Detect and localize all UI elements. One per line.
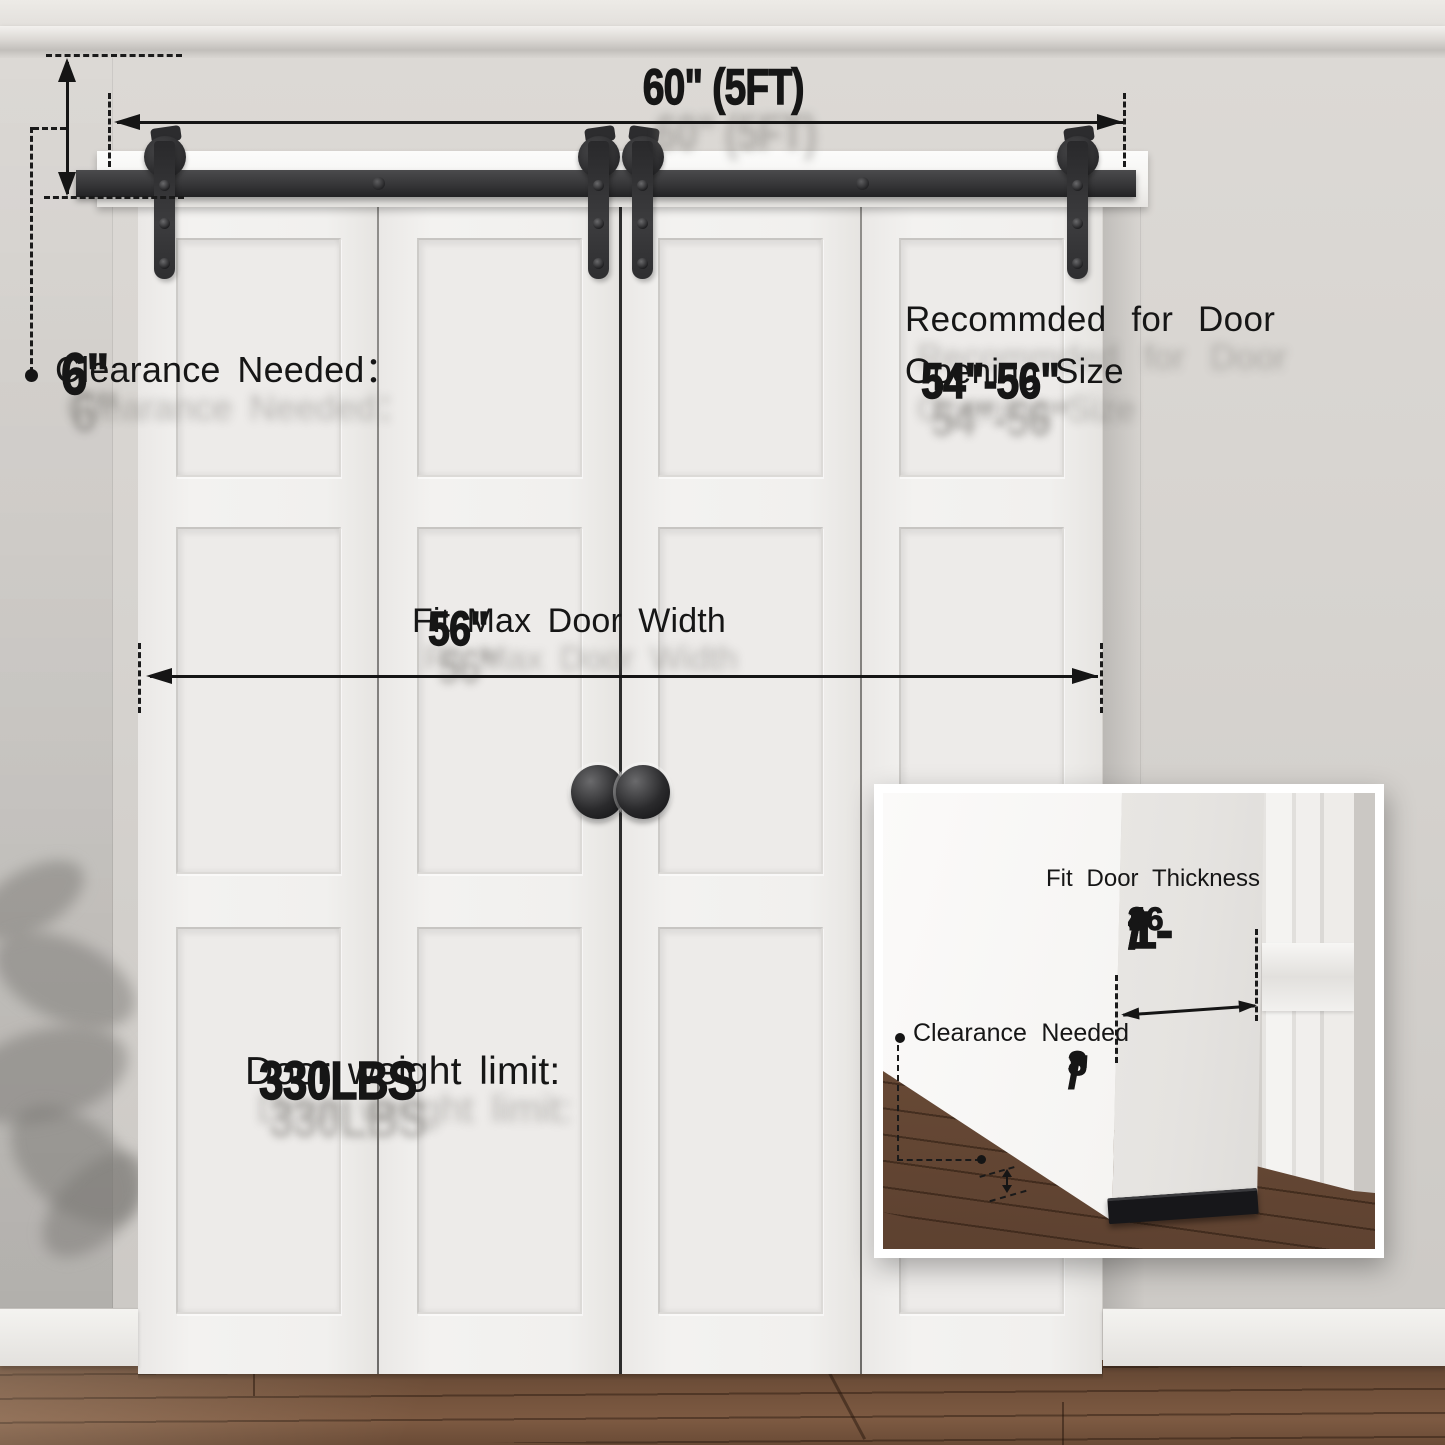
leader-line <box>33 127 66 130</box>
weight-value: 330LBS <box>259 1050 417 1112</box>
thickness-max-unit: " <box>1128 901 1152 961</box>
arrowhead-up-icon <box>58 58 76 82</box>
hanger-bolt <box>637 180 648 191</box>
door-panel <box>658 527 823 874</box>
product-dimension-diagram: 60" (5FT) Clearance Needed： 6" Recommded… <box>0 0 1445 1445</box>
hanger-bolt <box>159 258 170 269</box>
inset-jamb-molding <box>1262 943 1354 1011</box>
door-panel <box>658 927 823 1314</box>
leader-dot <box>977 1155 986 1164</box>
track-length-value: 60" (5FT) <box>643 58 804 116</box>
door-thickness-label: Fit Door Thickness <box>1023 865 1283 893</box>
clearance-bottom-line <box>44 196 184 199</box>
extension-line <box>1123 93 1126 167</box>
clearance-value: 6" <box>61 341 108 408</box>
hanger-bolt <box>1072 218 1083 229</box>
baseboard-right <box>1103 1308 1445 1366</box>
arrowhead-left-icon <box>146 668 172 684</box>
clearance-unit: " <box>1068 1045 1089 1099</box>
floor-plank-joint <box>1062 1402 1064 1445</box>
arrowhead-right-icon <box>1097 114 1123 130</box>
arrowhead-right-icon <box>1072 668 1098 684</box>
hanger-bolt <box>159 218 170 229</box>
hanger-bolt <box>637 218 648 229</box>
door-knob-right <box>616 765 670 819</box>
leader-line <box>30 127 33 373</box>
track-length-dimension-line <box>117 121 1123 124</box>
extension-line <box>108 93 111 167</box>
hanger-bolt <box>593 258 604 269</box>
crown-molding <box>0 26 1445 58</box>
leader-dot <box>895 1033 905 1043</box>
track-bolt <box>372 177 385 190</box>
hanger-bolt <box>159 180 170 191</box>
opening-size-value: 54"-56" <box>921 352 1059 410</box>
leader-dot <box>25 369 38 382</box>
door-panel <box>417 527 582 874</box>
arrowhead-left-icon <box>114 114 140 130</box>
track-bolt <box>856 177 869 190</box>
door-panel <box>417 927 582 1314</box>
hanger-bolt <box>637 258 648 269</box>
extension-line <box>138 643 141 713</box>
inset-photo: Fit Door Thickness 1-3/16"~1-3/4" Cleara… <box>883 793 1375 1249</box>
door-panel <box>417 238 582 477</box>
arrowhead-up-icon <box>1002 1169 1012 1177</box>
leader-line <box>897 1159 981 1161</box>
door-panel <box>176 927 341 1314</box>
detail-inset-panel: Fit Door Thickness 1-3/16"~1-3/4" Cleara… <box>874 784 1384 1258</box>
leader-line <box>897 1045 899 1161</box>
inset-wall <box>1354 793 1375 1249</box>
arrowhead-down-icon <box>1002 1185 1012 1193</box>
arrowhead-right-icon <box>1238 999 1257 1012</box>
inset-clearance-label: Clearance Needed <box>913 1019 1129 1048</box>
recommended-line1: Recommded for Door <box>905 300 1275 340</box>
ceiling <box>0 0 1445 26</box>
max-width-value: 56" <box>428 602 488 657</box>
hanger-bolt <box>1072 258 1083 269</box>
door-panel <box>658 238 823 477</box>
arrowhead-down-icon <box>58 172 76 196</box>
gap-arrow <box>1001 1169 1013 1193</box>
clearance-top-line <box>46 54 182 57</box>
max-width-dimension-line <box>150 675 1098 678</box>
baseboard-left <box>0 1308 138 1366</box>
extension-line <box>1100 643 1103 713</box>
hanger-bolt <box>1072 180 1083 191</box>
hanger-bolt <box>593 180 604 191</box>
hanger-bolt <box>593 218 604 229</box>
door-panel <box>176 527 341 874</box>
door-fold-seam <box>860 207 862 1374</box>
